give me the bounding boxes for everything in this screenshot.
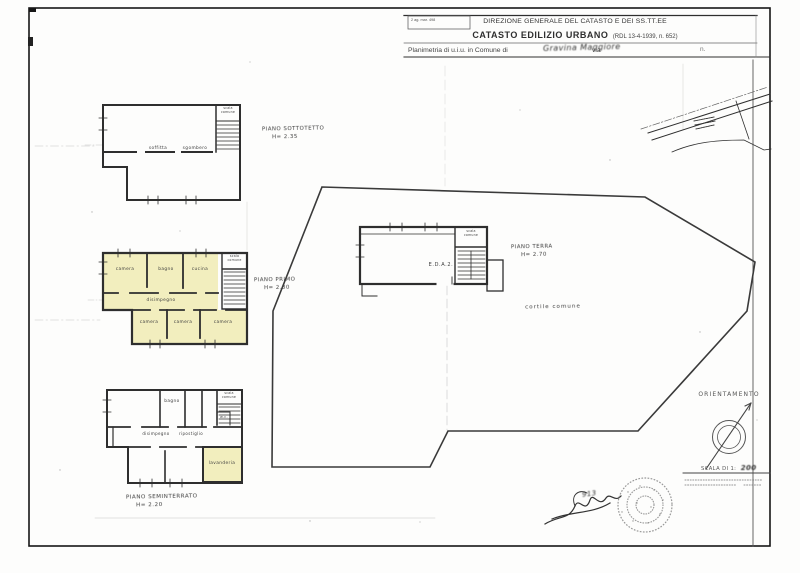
floor-title-seminterrato: PIANO SEMINTERRATO H= 2.20 — [126, 492, 198, 510]
stair-label: scala comune — [218, 107, 238, 114]
room-label: sgombero — [183, 146, 208, 151]
via-label: via — [592, 47, 601, 54]
room-label: lavanderia — [209, 461, 236, 466]
planimetria-label: Planimetria di u.i.u. in Comune di — [408, 47, 508, 54]
plan-seminterrato — [103, 390, 242, 487]
stair-label: scala comune — [224, 255, 245, 262]
parcel-outline — [272, 187, 755, 467]
scale-label: SCALA DI 1: — [701, 466, 736, 472]
unit-ref-label: E.D.A.2. — [429, 262, 454, 268]
cadastral-plan-sheet: 2 ag. mar. 498 DIREZIONE GENERALE DEL CA… — [0, 0, 800, 573]
floor-title-sottotetto: PIANO SOTTOTETTO H= 2.35 — [262, 124, 325, 141]
floor-height: H= 2.70 — [521, 251, 553, 260]
date-stamp: 2 ag. mar. 498 — [411, 18, 435, 22]
room-label: disimpegno — [147, 298, 176, 303]
floor-title-primo: PIANO PRIMO H= 2.80 — [254, 276, 296, 293]
courtyard-label: cortile comune — [525, 304, 581, 311]
number-label: n. — [700, 46, 705, 53]
room-label: bagno — [164, 399, 179, 404]
room-label: camera — [214, 320, 233, 325]
scale-line: SCALA DI 1: 200 — [701, 457, 757, 475]
room-label: ripostiglio — [179, 431, 203, 436]
room-label: camera — [116, 267, 135, 272]
room-label: camera — [174, 320, 193, 325]
scale-value: 200 — [741, 464, 757, 472]
orientation-label: ORIENTAMENTO — [698, 391, 759, 398]
register-ref: (RDL 13-4-1939, n. 652) — [613, 34, 678, 40]
stair-label: scala comune — [459, 230, 483, 237]
floor-title-terra: PIANO TERRA H= 2.70 — [511, 243, 553, 260]
room-label: cucina — [192, 267, 208, 272]
room-label: bagno — [158, 267, 173, 272]
room-label: w.c. — [220, 415, 228, 419]
room-label: soffitta — [149, 146, 167, 151]
floor-height: H= 2.35 — [272, 133, 324, 142]
plan-sottotetto — [99, 105, 240, 204]
floor-height: H= 2.20 — [136, 501, 198, 510]
signature-and-stamp — [545, 478, 672, 532]
road-sketch — [641, 87, 772, 152]
plan-drawing — [0, 0, 800, 573]
stair-label: scala comune — [219, 392, 239, 399]
floor-height: H= 2.80 — [264, 284, 296, 293]
register-title: CATASTO EDILIZIO URBANO — [472, 30, 608, 40]
room-label: camera — [140, 320, 159, 325]
room-label: disimpegno — [142, 431, 169, 436]
register-title-line: CATASTO EDILIZIO URBANO (RDL 13-4-1939, … — [470, 25, 680, 43]
